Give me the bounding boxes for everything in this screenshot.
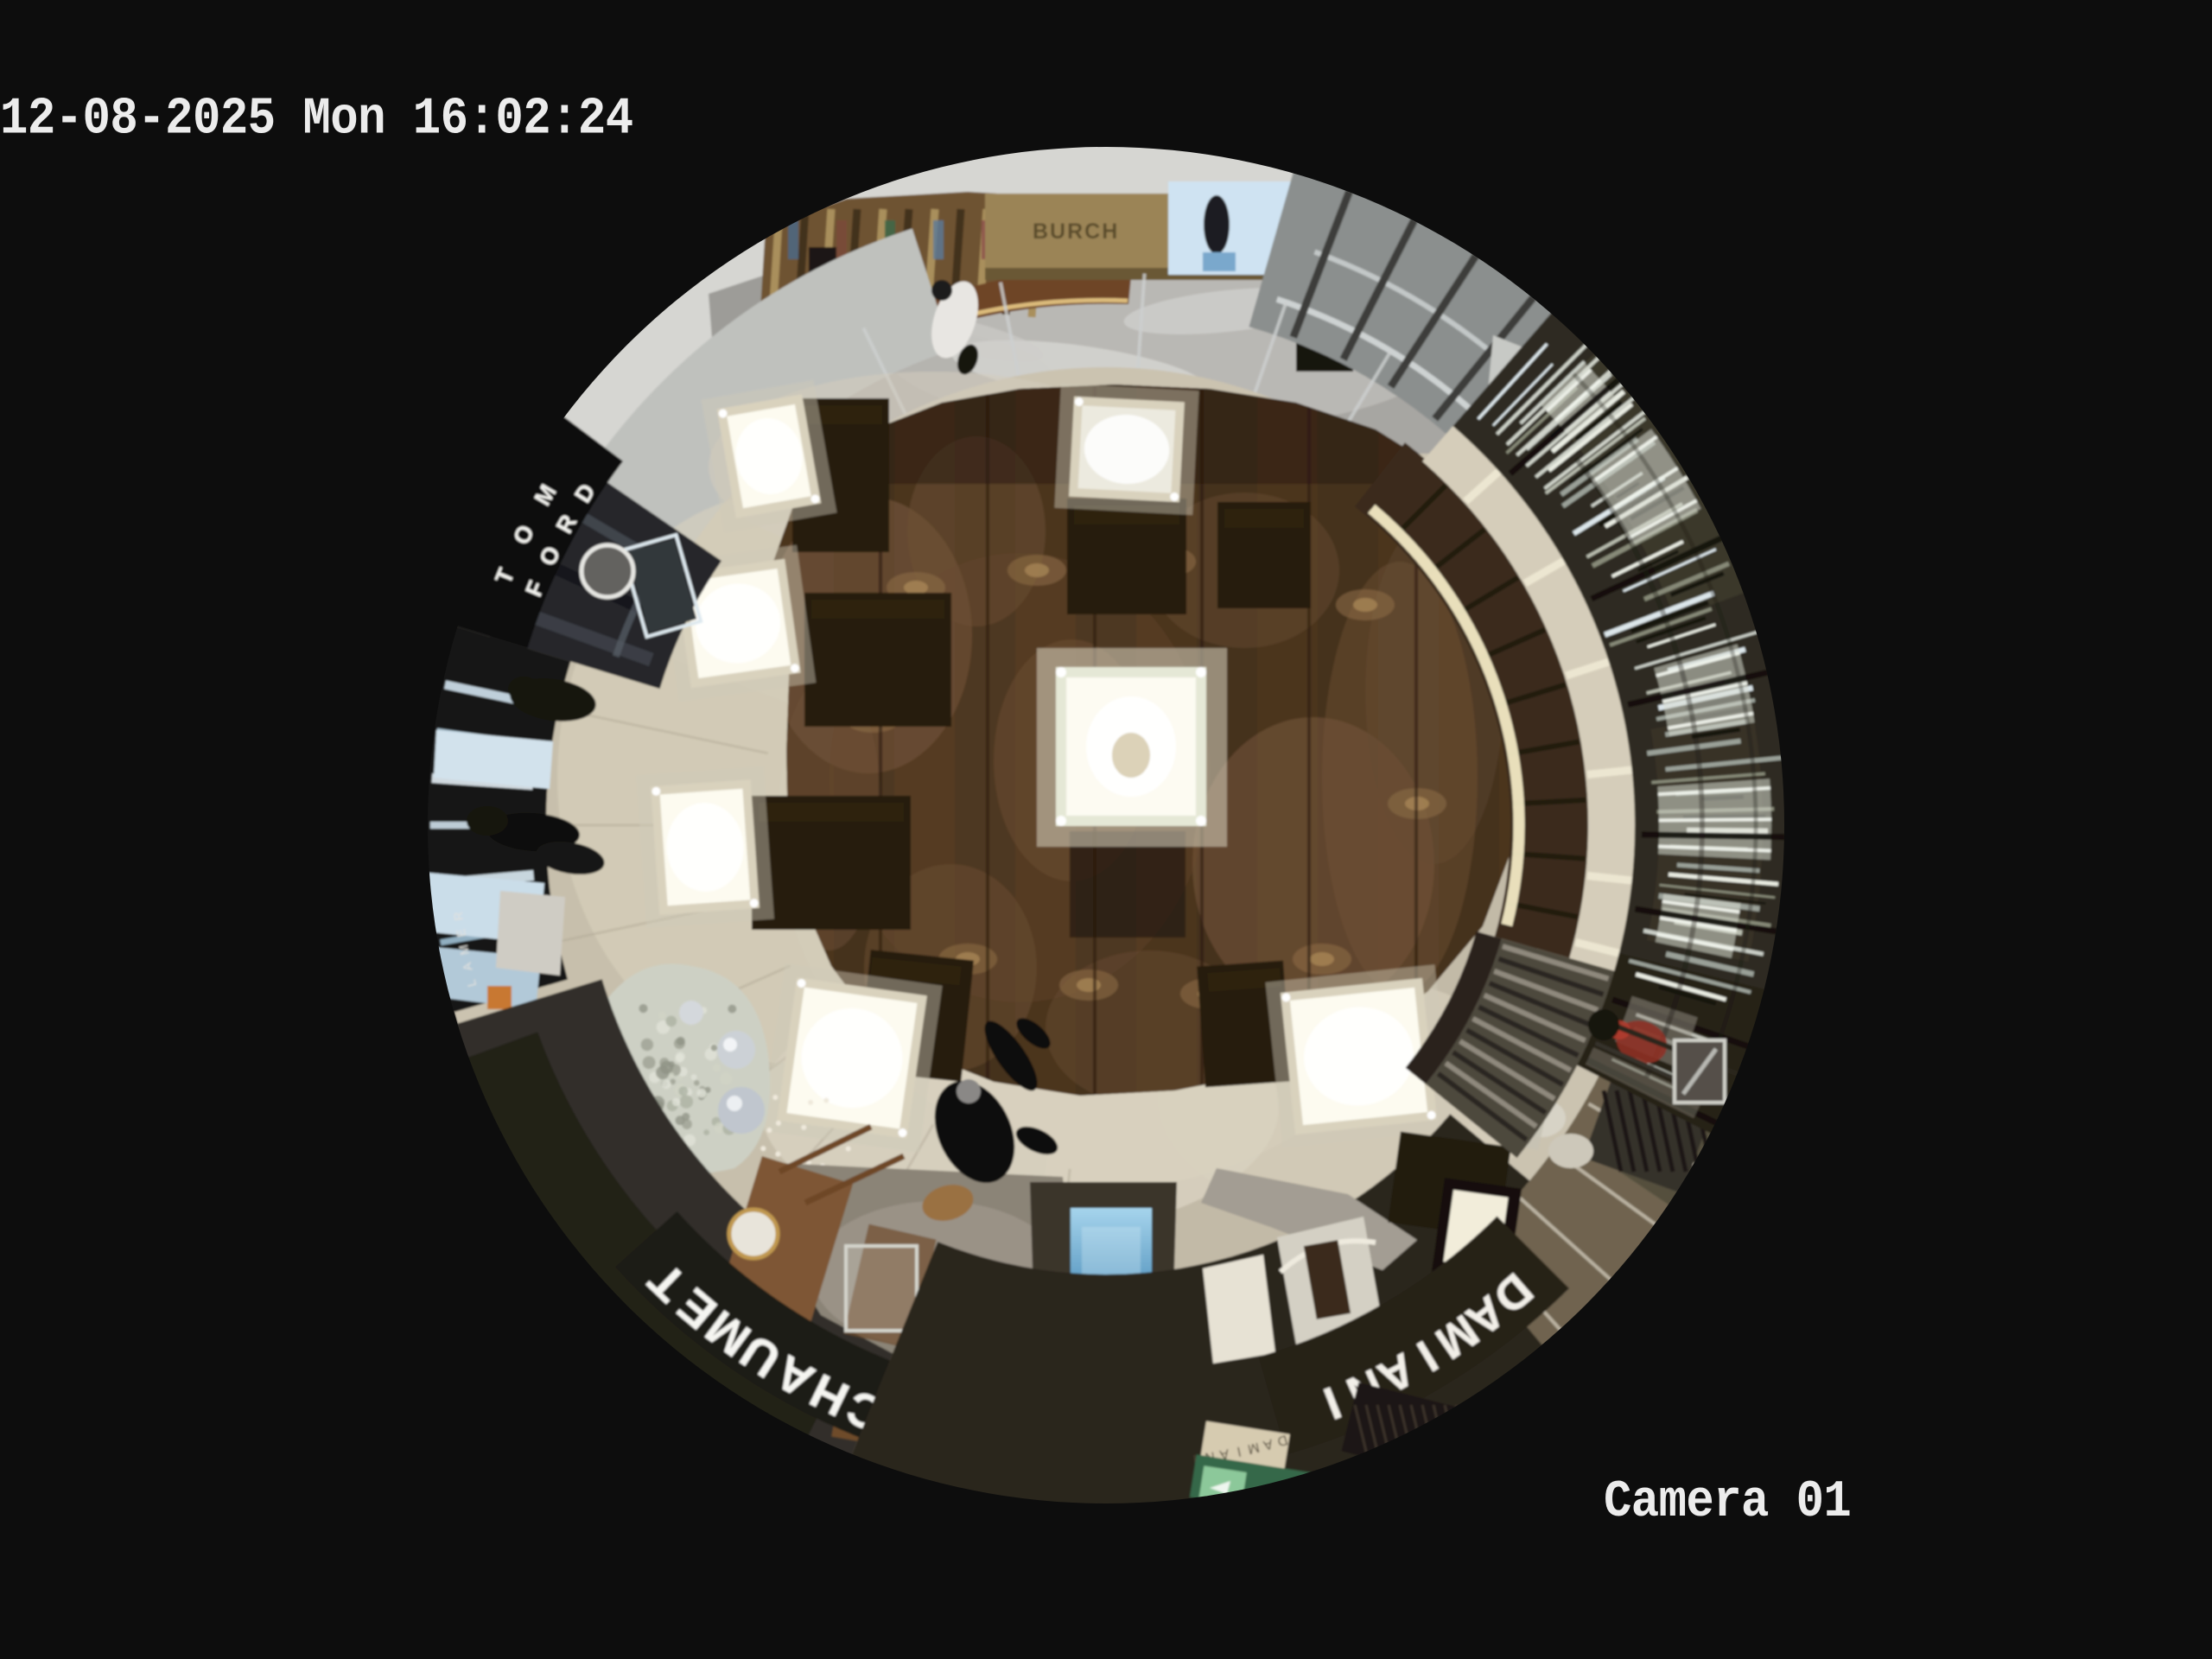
svg-text:12-08-2025 Mon 16:02:24: 12-08-2025 Mon 16:02:24 [0,90,633,149]
svg-text:Camera 01: Camera 01 [1604,1472,1851,1532]
svg-text:BURCH: BURCH [1033,219,1119,244]
